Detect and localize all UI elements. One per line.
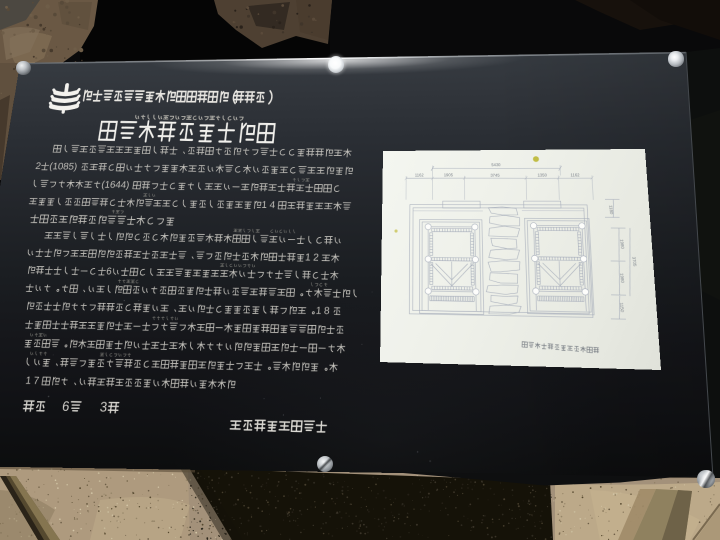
svg-text:5430: 5430 (491, 163, 500, 167)
svg-text:(1085): (1085) (49, 161, 78, 172)
svg-text:6: 6 (61, 400, 70, 415)
svg-text:1162: 1162 (415, 173, 424, 177)
svg-text:3: 3 (99, 400, 108, 415)
svg-text:1350: 1350 (537, 173, 547, 177)
svg-text:1980: 1980 (619, 273, 625, 283)
svg-text:3705: 3705 (631, 257, 637, 267)
svg-text:1162: 1162 (570, 173, 579, 177)
svg-text:14: 14 (261, 199, 278, 210)
svg-text:1980: 1980 (619, 239, 625, 249)
svg-text:3745: 3745 (490, 173, 499, 177)
svg-text:12: 12 (305, 251, 322, 263)
svg-text:1905: 1905 (444, 173, 453, 177)
svg-text:6: 6 (106, 265, 113, 276)
svg-text:(1644): (1644) (101, 179, 130, 190)
svg-text:17: 17 (25, 374, 43, 386)
svg-text:18: 18 (315, 304, 332, 316)
svg-text:2: 2 (35, 161, 42, 172)
svg-text:1180: 1180 (608, 205, 614, 214)
